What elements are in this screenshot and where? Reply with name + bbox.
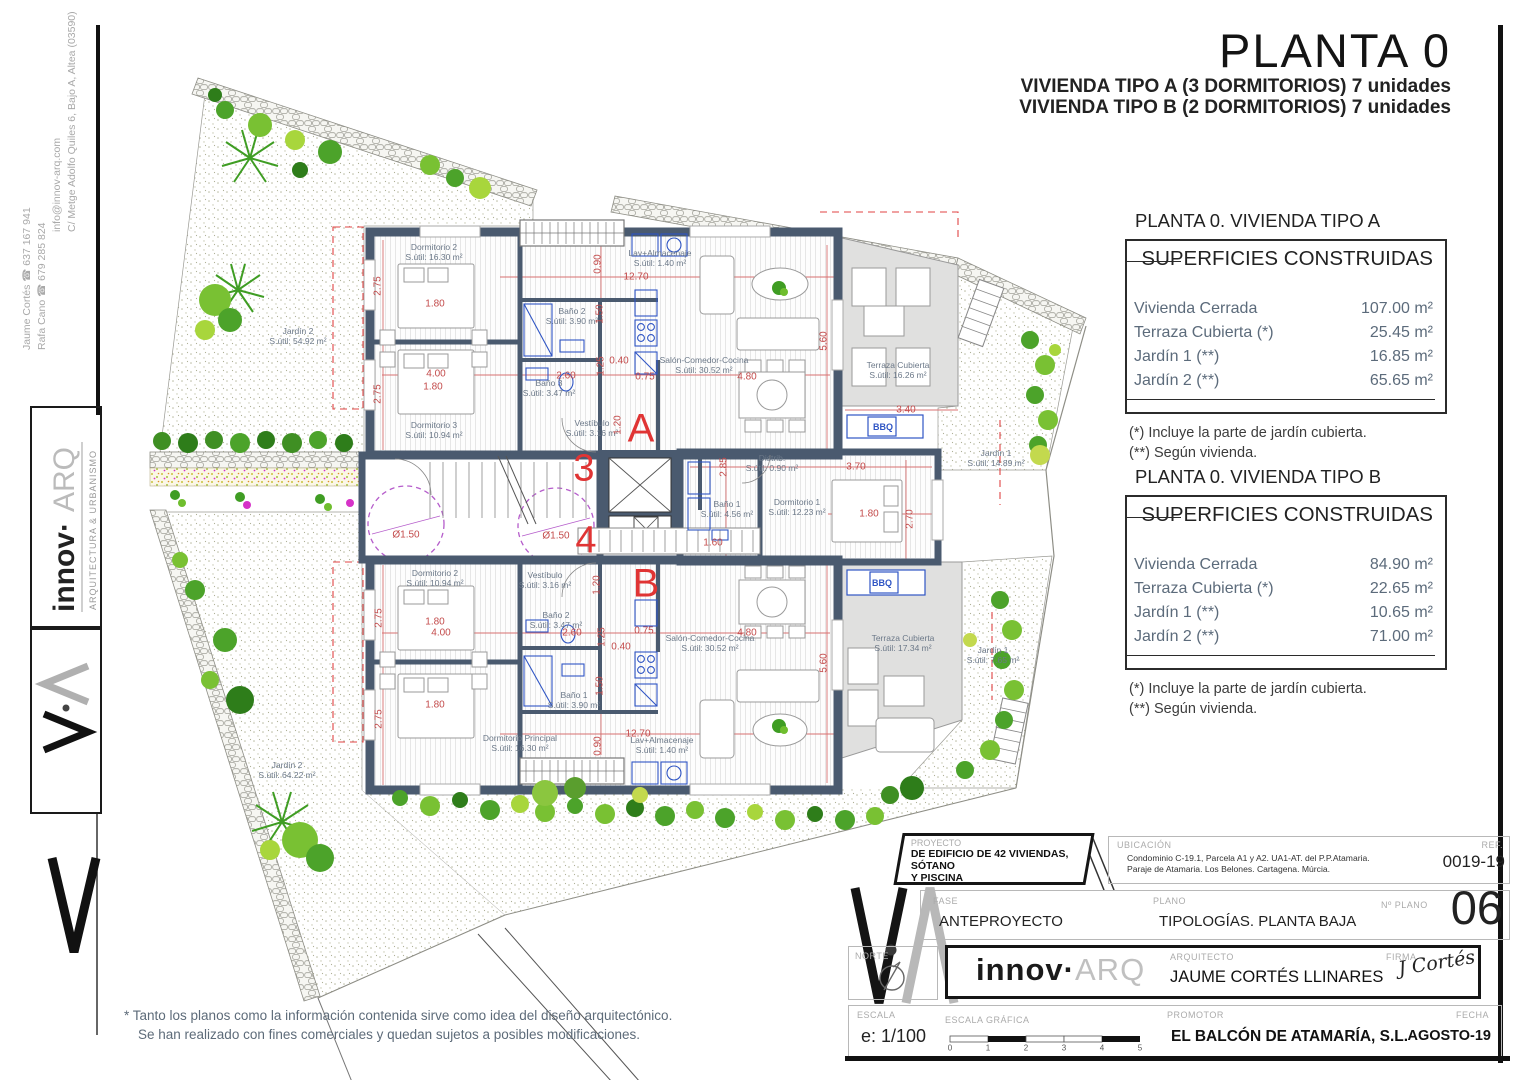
table-row: Jardín 1 (**)16.85 m² — [1134, 345, 1433, 369]
contact-info: info@innov-arq.com C/ Metge Adolfo Quile… — [50, 11, 80, 232]
dim-label: 4.80 — [737, 628, 756, 639]
dim-label: 1.50 — [595, 676, 606, 695]
row-label: Jardín 1 (**) — [1134, 345, 1219, 369]
sheet-title-block: PLANTA 0 VIVIENDA TIPO A (3 DORMITORIOS)… — [1019, 26, 1451, 118]
row-label: Jardín 2 (**) — [1134, 369, 1219, 393]
dim-label: 1.80 — [425, 700, 444, 711]
dim-label: 1.20 — [613, 415, 624, 434]
page-title: PLANTA 0 — [1019, 26, 1451, 76]
innov-arq-logo-box — [30, 406, 102, 628]
row-label: Terraza Cubierta (*) — [1134, 577, 1274, 601]
panel-b-notes: (*) Incluye la parte de jardín cubierta.… — [1125, 679, 1447, 719]
unit-mark: B — [633, 562, 660, 607]
dim-label: 2.75 — [373, 384, 384, 403]
dim-label: 5.60 — [819, 653, 830, 672]
row-label: Jardín 2 (**) — [1134, 625, 1219, 649]
contact-phone-rafa: Rafa Cano ☎ 679 285 824 — [35, 207, 50, 350]
row-label: Terraza Cubierta (*) — [1134, 321, 1274, 345]
dim-label: 0.40 — [611, 642, 630, 653]
dim-label: 2.75 — [374, 608, 385, 627]
contact-phone-jaume: Jaume Cortés ☎ 637 167 941 — [20, 207, 35, 350]
proyecto-box: PROYECTO DE EDIFICIO DE 42 VIVIENDAS, SÓ… — [893, 833, 1094, 885]
dim-label: 2.85 — [719, 457, 730, 476]
dim-label: 4.00 — [426, 369, 445, 380]
escala-grafica-label: ESCALA GRÁFICA — [945, 1015, 1030, 1025]
ubicacion-box: UBICACIÓN Condominio C-19.1, Parcela A1 … — [1108, 836, 1510, 884]
fase-plano-box: FASE ANTEPROYECTO PLANO TIPOLOGÍAS. PLAN… — [920, 890, 1510, 940]
dim-label: 0.75 — [635, 372, 654, 383]
dim-label: 3.40 — [896, 405, 915, 416]
dim-label: 2.75 — [373, 276, 384, 295]
plan-sheet: innov· ARQ ARQUITECTURA & URBANISMO Dorm… — [0, 0, 1527, 1080]
plano-value: TIPOLOGÍAS. PLANTA BAJA — [1159, 913, 1356, 930]
norte-box: NORTE — [848, 946, 938, 1000]
disclaimer-line1: * Tanto los planos como la información c… — [124, 1006, 672, 1025]
dim-label: 1.50 — [595, 304, 606, 323]
ubicacion-line1: Condominio C-19.1, Parcela A1 y A2. UA1-… — [1127, 853, 1370, 864]
room-label: Terraza CubiertaS.útil: 17.34 m² — [872, 633, 935, 653]
room-label: Dormitorio 1S.útil: 12.23 m² — [768, 497, 825, 517]
panel-b-table-title: SUPERFICIES CONSTRUIDAS — [1137, 503, 1435, 527]
norte-label: NORTE — [855, 951, 889, 961]
room-label: Dormitorio 3S.útil: 10.94 m² — [405, 420, 462, 440]
dim-label: 1.80 — [859, 509, 878, 520]
fecha-label: FECHA — [1456, 1010, 1489, 1020]
room-label: VestíbuloS.útil: 3.16 m² — [519, 570, 571, 590]
dim-label: 2.60 — [556, 371, 575, 382]
unit-mark: 4 — [575, 520, 596, 563]
row-value: 65.65 m² — [1370, 369, 1433, 393]
plano-label: PLANO — [1153, 896, 1186, 906]
ref-label: REF. — [1481, 840, 1503, 850]
garden-label: Jardín 1S.útil: 7.65 m² — [967, 645, 1019, 665]
proyecto-value-line2: Y PISCINA — [911, 872, 1083, 884]
dim-label: 2.60 — [562, 628, 581, 639]
room-label: Salón-Comedor-CocinaS.útil: 30.52 m² — [660, 355, 749, 375]
dim-label: 2.75 — [374, 709, 385, 728]
titleblock-bottom-bar — [845, 1056, 1510, 1061]
room-label: Baño 1S.útil: 4.56 m² — [701, 499, 753, 519]
row-value: 16.85 m² — [1370, 345, 1433, 369]
table-row: Vivienda Cerrada107.00 m² — [1134, 297, 1433, 321]
fecha-value: AGOSTO-19 — [1407, 1028, 1491, 1044]
ubicacion-line2: Paraje de Atamaria. Los Belones. Cartage… — [1127, 864, 1370, 875]
unit-mark: 3 — [573, 448, 594, 491]
room-label: Baño 2S.útil: 3.90 m² — [546, 306, 598, 326]
dim-label: 1.25 — [597, 627, 608, 646]
subtitle-tipo-a: VIVIENDA TIPO A (3 DORMITORIOS) 7 unidad… — [1019, 76, 1451, 97]
dim-label: 1.25 — [596, 356, 607, 375]
row-value: 71.00 m² — [1370, 625, 1433, 649]
logo-part1: innov· — [976, 952, 1075, 987]
dim-label: 0.75 — [634, 626, 653, 637]
promotor-value: EL BALCÓN DE ATAMARÍA, S.L. — [1171, 1028, 1408, 1046]
panel-b-table: SUPERFICIES CONSTRUIDAS Vivienda Cerrada… — [1125, 495, 1447, 670]
disclaimer: * Tanto los planos como la información c… — [124, 1006, 672, 1044]
table-row: Jardín 2 (**)71.00 m² — [1134, 625, 1433, 649]
row-label: Vivienda Cerrada — [1134, 553, 1257, 577]
proyecto-label: PROYECTO — [911, 838, 1083, 848]
garden-label: Jardín 2S.útil: 54.92 m² — [269, 326, 326, 346]
contact-address: C/ Metge Adolfo Quiles 6, Bajo A, Altea … — [65, 11, 80, 232]
room-label: Dormitorio 2S.útil: 16.30 m² — [405, 242, 462, 262]
note-line: (*) Incluye la parte de jardín cubierta. — [1129, 423, 1447, 443]
row-label: Jardín 1 (**) — [1134, 601, 1219, 625]
dim-label: 3.70 — [846, 462, 865, 473]
panel-b-heading: PLANTA 0. VIVIENDA TIPO B — [1125, 466, 1447, 488]
dim-label: 12.70 — [625, 729, 650, 740]
fase-label: FASE — [933, 896, 958, 906]
dim-label: 12.70 — [623, 272, 648, 283]
ubicacion-label: UBICACIÓN — [1117, 840, 1172, 850]
fase-value: ANTEPROYECTO — [939, 913, 1063, 930]
disclaimer-line2: Se han realizado con fines comerciales y… — [124, 1025, 672, 1044]
dim-label: 2.70 — [905, 509, 916, 528]
dim-label: 0.90 — [593, 254, 604, 273]
room-label: Dormitorio 2S.útil: 10.94 m² — [406, 568, 463, 588]
logo-part2: ARQ — [1075, 952, 1145, 987]
dim-label: Ø1.50 — [542, 531, 569, 542]
bbq-label: BBQ — [873, 422, 893, 432]
escala-label: ESCALA — [857, 1010, 896, 1020]
promotor-label: PROMOTOR — [1167, 1010, 1224, 1020]
note-line: (**) Según vivienda. — [1129, 699, 1447, 719]
room-label: Baño 1S.útil: 3.90 m² — [548, 690, 600, 710]
arquitecto-label: ARQUITECTO — [1170, 952, 1234, 962]
row-label: Vivienda Cerrada — [1134, 297, 1257, 321]
innov-arq-logo: innov·ARQ — [976, 952, 1145, 988]
panel-vivienda-a: PLANTA 0. VIVIENDA TIPO A SUPERFICIES CO… — [1125, 210, 1447, 463]
num-plano-label: Nº PLANO — [1381, 900, 1428, 910]
dim-label: 1.80 — [423, 382, 442, 393]
contact-phones: Jaume Cortés ☎ 637 167 941 Rafa Cano ☎ 6… — [20, 207, 50, 350]
dim-label: 0.40 — [609, 356, 628, 367]
row-value: 10.65 m² — [1370, 601, 1433, 625]
panel-a-table-title: SUPERFICIES CONSTRUIDAS — [1137, 247, 1435, 271]
row-value: 25.45 m² — [1370, 321, 1433, 345]
dim-label: 0.90 — [593, 736, 604, 755]
dim-label: 4.80 — [737, 372, 756, 383]
dim-label: 4.00 — [431, 628, 450, 639]
row-value: 84.90 m² — [1370, 553, 1433, 577]
contact-email: info@innov-arq.com — [50, 11, 65, 232]
dim-label: 1.60 — [703, 538, 722, 549]
panel-a-notes: (*) Incluye la parte de jardín cubierta.… — [1125, 423, 1447, 463]
panel-vivienda-b: PLANTA 0. VIVIENDA TIPO B SUPERFICIES CO… — [1125, 466, 1447, 719]
dim-label: 5.60 — [819, 331, 830, 350]
table-row: Vivienda Cerrada84.90 m² — [1134, 553, 1433, 577]
va-logo-box — [30, 628, 102, 814]
dim-label: 1.20 — [592, 575, 603, 594]
subtitle-tipo-b: VIVIENDA TIPO B (2 DORMITORIOS) 7 unidad… — [1019, 97, 1451, 118]
panel-a-table: SUPERFICIES CONSTRUIDAS Vivienda Cerrada… — [1125, 239, 1447, 414]
room-label: VestíbuloS.útil: 3.16 m² — [566, 418, 618, 438]
table-row: Terraza Cubierta (*)25.45 m² — [1134, 321, 1433, 345]
table-row: Terraza Cubierta (*)22.65 m² — [1134, 577, 1433, 601]
dim-label: 1.80 — [425, 617, 444, 628]
note-line: (*) Incluye la parte de jardín cubierta. — [1129, 679, 1447, 699]
ref-value: 0019-19 — [1443, 852, 1505, 872]
escala-value: e: 1/100 — [861, 1026, 926, 1047]
num-plano-value: 06 — [1451, 880, 1503, 935]
bbq-label: BBQ — [872, 578, 892, 588]
room-label: Dormitorio PrincipalS.útil: 16.30 m² — [483, 733, 557, 753]
garden-label: Jardín 1S.útil: 14.89 m² — [967, 448, 1024, 468]
dim-label: Ø1.50 — [392, 530, 419, 541]
proyecto-value-line1: DE EDIFICIO DE 42 VIVIENDAS, SÓTANO — [911, 848, 1083, 872]
table-row: Jardín 2 (**)65.65 m² — [1134, 369, 1433, 393]
dim-label: 1.80 — [425, 299, 444, 310]
room-label: Terraza CubiertaS.útil: 16.26 m² — [867, 360, 930, 380]
unit-mark: A — [628, 407, 655, 452]
room-label: Distrib.S.útil: 0.90 m² — [746, 453, 798, 473]
row-value: 22.65 m² — [1370, 577, 1433, 601]
escala-promotor-box: ESCALA e: 1/100 ESCALA GRÁFICA PROMOTOR … — [848, 1005, 1502, 1057]
arquitecto-value: JAUME CORTÉS LLINARES — [1170, 968, 1383, 987]
panel-a-heading: PLANTA 0. VIVIENDA TIPO A — [1125, 210, 1447, 232]
row-value: 107.00 m² — [1361, 297, 1433, 321]
garden-label: Jardín 2S.útil: 64.22 m² — [258, 760, 315, 780]
room-label: Lav+AlmacenajeS.útil: 1.40 m² — [628, 248, 691, 268]
note-line: (**) Según vivienda. — [1129, 443, 1447, 463]
table-row: Jardín 1 (**)10.65 m² — [1134, 601, 1433, 625]
